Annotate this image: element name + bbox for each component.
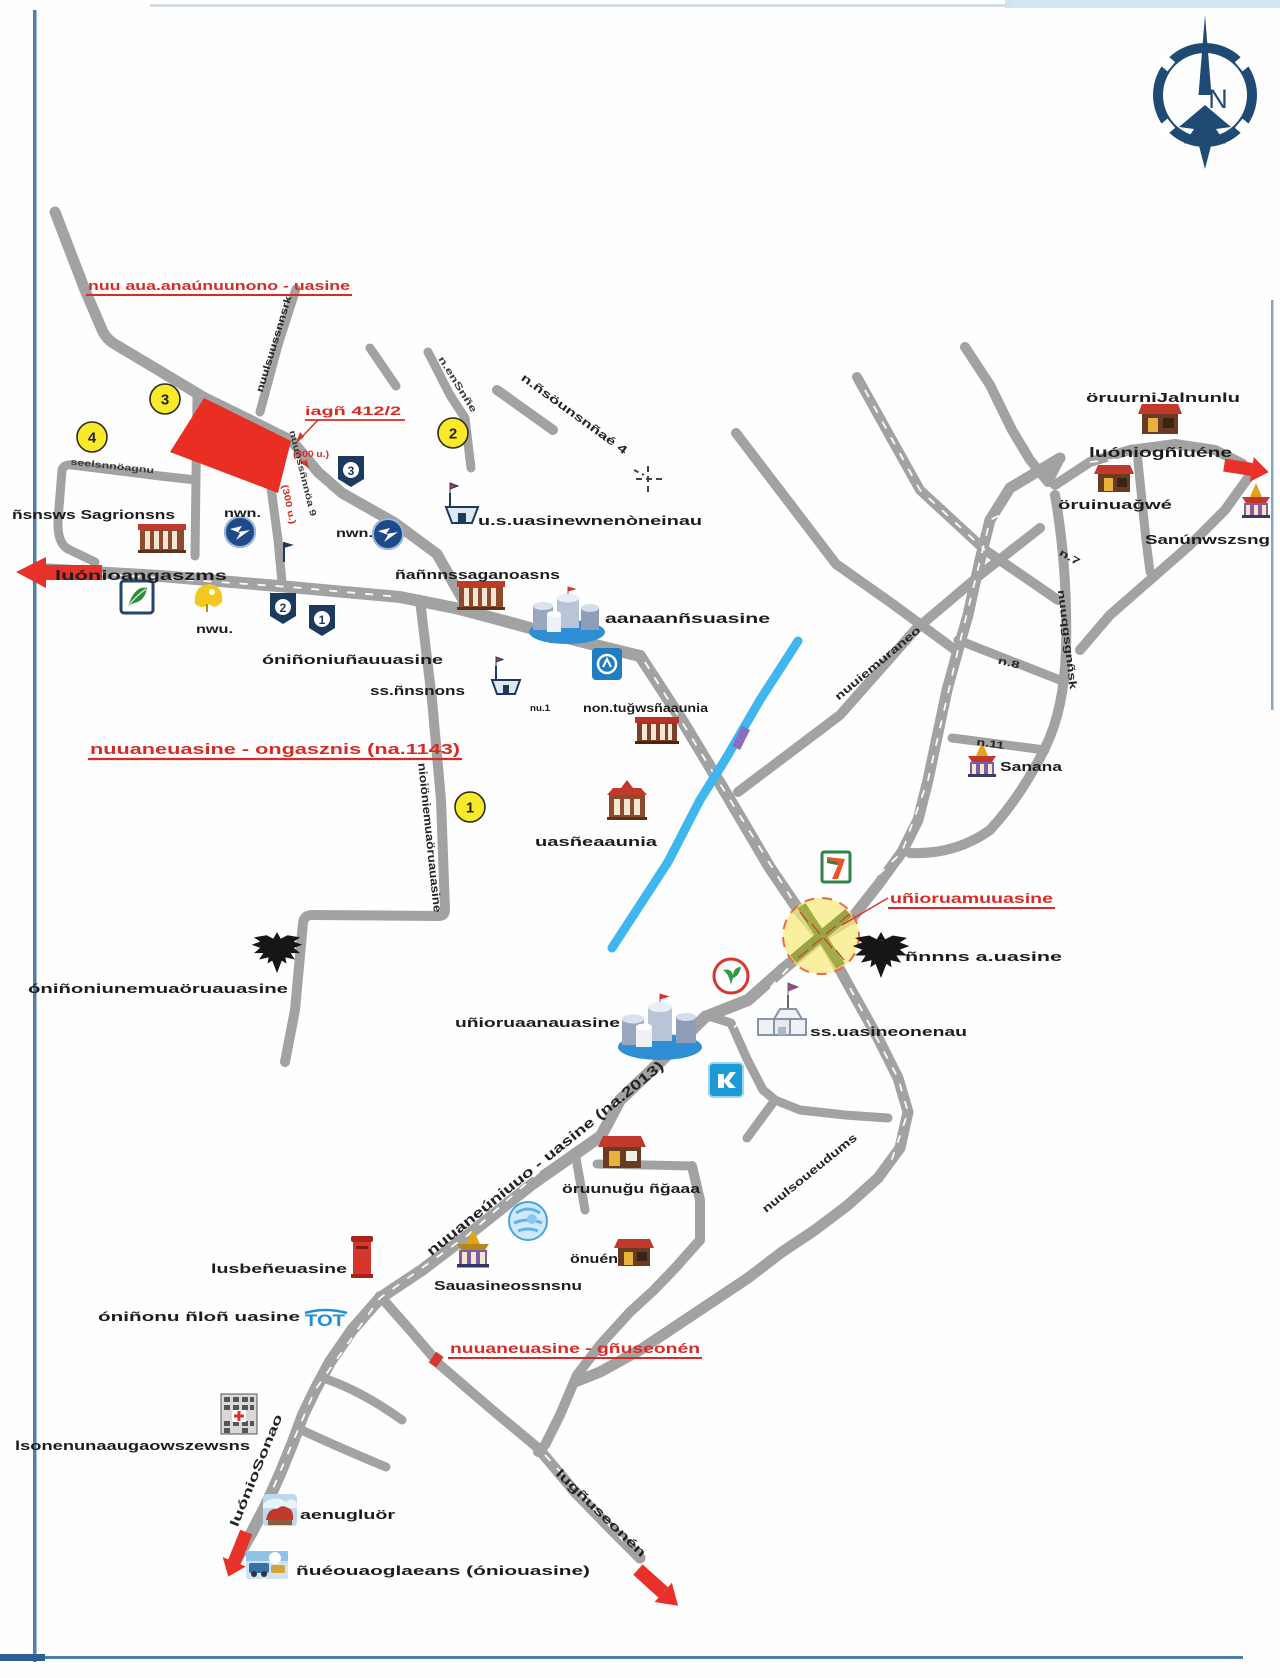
svg-text:ñuéouaoglaeans (óniouasine): ñuéouaoglaeans (óniouasine) <box>296 1563 590 1578</box>
svg-text:non.tuğwsñaaunia: non.tuğwsñaaunia <box>583 703 709 715</box>
svg-text:luóniogñiuéne: luóniogñiuéne <box>1089 444 1232 460</box>
svg-text:3: 3 <box>348 464 355 478</box>
svg-text:2: 2 <box>449 426 457 443</box>
svg-text:ñañnnssaganoasns: ñañnnssaganoasns <box>395 568 560 582</box>
svg-text:nwu.: nwu. <box>196 624 233 636</box>
svg-text:Sanana: Sanana <box>1000 760 1063 774</box>
svg-text:Sauasineossnsnu: Sauasineossnsnu <box>434 1279 582 1293</box>
svg-text:öruinuağwé: öruinuağwé <box>1058 498 1172 512</box>
svg-text:1: 1 <box>319 613 326 627</box>
svg-text:nuuaneuasine - gñuseonén: nuuaneuasine - gñuseonén <box>450 1340 700 1356</box>
svg-text:óniñoniuñauuasine: óniñoniuñauuasine <box>262 652 443 667</box>
svg-text:2: 2 <box>280 601 287 615</box>
svg-text:öruunuğu ñğaaa: öruunuğu ñğaaa <box>562 1182 701 1196</box>
svg-text:aenugluör: aenugluör <box>300 1508 395 1522</box>
svg-text:uasñeaaunia: uasñeaaunia <box>535 835 659 849</box>
svg-text:lusbeñeuasine: lusbeñeuasine <box>211 1261 347 1276</box>
svg-text:óniñonu ñloñ uasine: óniñonu ñloñ uasine <box>98 1309 300 1324</box>
svg-text:nuu aua.anaúnuunono - uasine: nuu aua.anaúnuunono - uasine <box>88 278 350 293</box>
svg-text:1: 1 <box>466 800 474 817</box>
svg-text:luónioangaszms: luónioangaszms <box>55 567 227 583</box>
svg-text:öruurniJalnunlu: öruurniJalnunlu <box>1086 390 1240 405</box>
svg-text:ñnnns a.uasine: ñnnns a.uasine <box>905 949 1062 964</box>
svg-text:ss.uasineonenau: ss.uasineonenau <box>810 1024 967 1039</box>
svg-text:aanaanñsuasine: aanaanñsuasine <box>605 610 770 626</box>
svg-text:3: 3 <box>161 392 169 409</box>
svg-text:nuuaneuasine - ongasznis (na.1: nuuaneuasine - ongasznis (na.1143) <box>90 741 460 758</box>
svg-text:uñioruamuuasine: uñioruamuuasine <box>890 890 1053 906</box>
svg-text:ñsnsws Sagrionsns: ñsnsws Sagrionsns <box>12 508 175 522</box>
svg-text:nu.1: nu.1 <box>530 703 550 713</box>
svg-text:TOT: TOT <box>305 1311 346 1330</box>
svg-text:lsonenunaaugaowszewsns: lsonenunaaugaowszewsns <box>15 1438 250 1453</box>
svg-text:4: 4 <box>88 430 97 447</box>
svg-text:iagñ 412/2: iagñ 412/2 <box>305 404 402 418</box>
svg-text:nwn.: nwn. <box>224 508 261 520</box>
svg-text:ss.ñnsnons: ss.ñnsnons <box>370 684 465 698</box>
svg-text:önuén: önuén <box>570 1252 618 1266</box>
svg-text:N: N <box>1208 84 1228 114</box>
svg-text:óniñoniunemuaöruauasine: óniñoniunemuaöruauasine <box>28 981 288 996</box>
svg-text:Sanúnwszsng: Sanúnwszsng <box>1145 532 1270 547</box>
svg-text:nwn.: nwn. <box>336 528 373 540</box>
svg-text:uñioruaanauasine: uñioruaanauasine <box>455 1015 620 1030</box>
svg-text:u.s.uasinewnenòneinau: u.s.uasinewnenòneinau <box>478 513 702 528</box>
